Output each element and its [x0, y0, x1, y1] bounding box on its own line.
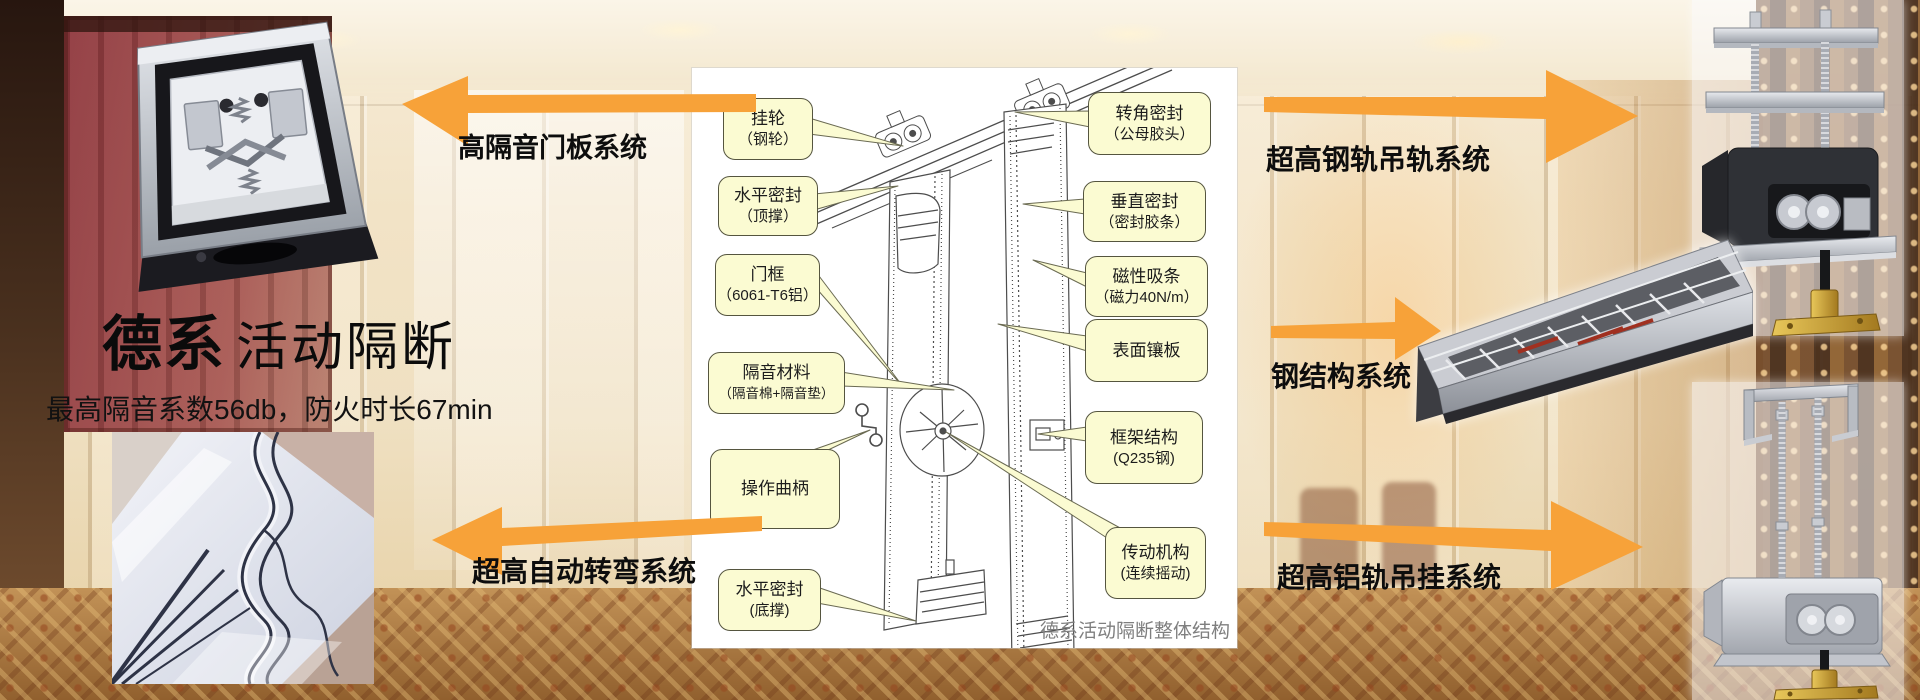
callout-label: 水平密封 [736, 579, 804, 601]
callout-sublabel: （钢轮） [738, 130, 798, 150]
callout-label: 表面镶板 [1113, 340, 1181, 362]
door-leaf-front [884, 170, 986, 630]
callout-top-seal: 水平密封 （顶撑） [718, 176, 818, 236]
callout-pointers [809, 111, 1122, 621]
diagram-caption: 德系活动隔断整体结构 [1040, 616, 1230, 643]
callout-label: 水平密封 [734, 185, 802, 207]
callout-bottom-seal: 水平密封 (底撑) [718, 569, 821, 631]
callout-label: 传动机构 [1122, 542, 1190, 564]
hanger-bar [1714, 28, 1878, 43]
callout-sublabel: (底撑) [750, 601, 790, 621]
slide-canvas: 德系活动隔断 最高隔音系数56db，防火时长67min [0, 0, 1920, 700]
callout-sublabel: （公母胶头） [1104, 125, 1194, 145]
callout-door-frame: 门框 （6061-T6铝） [715, 254, 820, 316]
brass-pivot [1811, 290, 1838, 320]
trolley-wheel-assembly [869, 103, 932, 158]
product-title-bold: 德系 [102, 311, 226, 378]
callout-corner-seal: 转角密封 （公母胶头） [1088, 92, 1211, 155]
callout-sublabel: （隔音棉+隔音垫） [719, 384, 835, 404]
crank-handle-drawing [856, 404, 882, 446]
product-subtitle: 最高隔音系数56db，防火时长67min [46, 388, 493, 428]
panel-bracket-right [268, 89, 307, 138]
callout-label: 门框 [751, 264, 785, 286]
callout-label: 磁性吸条 [1113, 266, 1181, 288]
callout-sound-material: 隔音材料 （隔音棉+隔音垫） [708, 352, 845, 414]
hanger-bar [1706, 92, 1884, 108]
label-auto-turning-system: 超高自动转弯系统 [472, 550, 696, 590]
structure-diagram-panel: 挂轮 （钢轮） 水平密封 （顶撑） 门框 （6061-T6铝） 隔音材料 （隔音… [692, 68, 1237, 648]
pendant-rod [1820, 250, 1830, 294]
callout-hanging-wheel: 挂轮 （钢轮） [723, 98, 813, 160]
aluminum-track [1704, 578, 1890, 666]
callout-sublabel: （6061-T6铝） [717, 286, 818, 306]
door-leaf-rear [1004, 104, 1074, 648]
callout-frame-structure: 框架结构 (Q235钢) [1085, 411, 1203, 484]
callout-surface-panel: 表面镶板 [1085, 319, 1208, 382]
callout-sublabel: (连续摇动) [1121, 564, 1191, 584]
ceiling-channel [1744, 384, 1858, 446]
photo-curved-track-system [112, 432, 374, 684]
label-steel-rail-system: 超高钢轨吊轨系统 [1266, 138, 1490, 178]
callout-vertical-seal: 垂直密封 （密封胶条） [1083, 181, 1206, 242]
label-aluminum-rail-system: 超高铝轨吊挂系统 [1277, 556, 1501, 596]
callout-label: 转角密封 [1116, 103, 1184, 125]
callout-label: 隔音材料 [743, 362, 811, 384]
background-left-column [0, 0, 64, 592]
callout-sublabel: （顶撑） [738, 207, 798, 227]
callout-sublabel: （磁力40N/m） [1094, 288, 1198, 308]
label-steel-structure-system: 钢结构系统 [1271, 355, 1411, 395]
callout-sublabel: （密封胶条） [1099, 213, 1189, 233]
photo-soundproof-door-panel [95, 2, 395, 312]
callout-label: 框架结构 [1110, 427, 1178, 449]
callout-label: 垂直密封 [1111, 191, 1179, 213]
callout-drive-mechanism: 传动机构 (连续摇动) [1105, 527, 1206, 599]
door-panel-section [113, 20, 380, 292]
photo-aluminum-rail-hanger [1692, 382, 1904, 700]
product-title-rest: 活动隔断 [236, 319, 456, 377]
callout-crank: 操作曲柄 [710, 449, 840, 529]
callout-label: 操作曲柄 [741, 478, 809, 500]
callout-sublabel: (Q235钢) [1113, 449, 1175, 469]
callout-label: 挂轮 [751, 108, 785, 130]
panel-bracket-left [184, 101, 223, 150]
callout-magnetic-strip: 磁性吸条 （磁力40N/m） [1085, 256, 1208, 317]
label-door-panel-system: 高隔音门板系统 [458, 126, 647, 165]
